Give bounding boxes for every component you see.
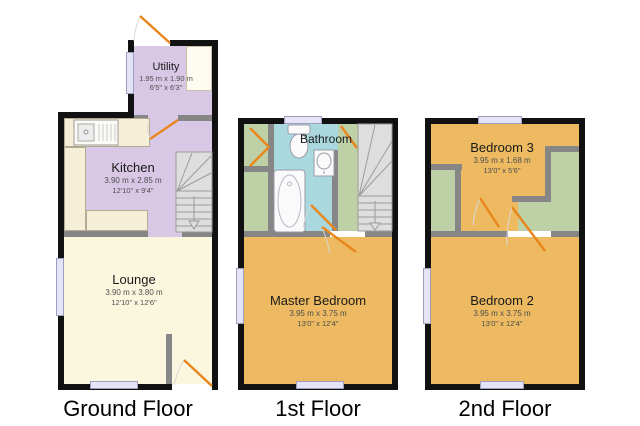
interior-wall — [512, 196, 551, 202]
stairwell — [518, 202, 551, 231]
interior-wall — [268, 124, 274, 231]
cupboard — [431, 170, 455, 231]
second-floor-caption: 2nd Floor — [425, 396, 585, 422]
door-jamb — [166, 334, 172, 384]
window — [478, 116, 522, 124]
wall — [392, 118, 398, 390]
wall — [425, 118, 431, 390]
window — [296, 381, 344, 389]
staircase-icon — [358, 124, 392, 231]
wall — [212, 40, 218, 390]
stairwell — [551, 152, 579, 231]
utility-worktop — [186, 46, 212, 91]
interior-wall — [244, 231, 330, 237]
wall — [238, 118, 244, 390]
lounge-room — [64, 237, 212, 384]
interior-wall — [365, 231, 392, 237]
interior-wall — [178, 115, 212, 121]
window — [56, 258, 64, 316]
floorplan-canvas: Utility 1.95 m x 1.90 m 6'5" x 6'3" Kitc… — [0, 0, 640, 426]
interior-wall — [551, 231, 579, 237]
ground-floor-caption: Ground Floor — [48, 396, 208, 422]
window — [90, 381, 138, 389]
window — [284, 116, 322, 124]
cupboard — [244, 124, 268, 166]
window — [423, 268, 431, 324]
kitchen-counter — [64, 118, 150, 147]
master-bedroom — [244, 237, 392, 384]
cupboard — [244, 172, 268, 231]
window — [480, 381, 524, 389]
kitchen-counter — [64, 147, 86, 231]
window — [126, 52, 134, 94]
bedroom-2 — [431, 237, 579, 384]
interior-wall — [455, 164, 461, 231]
window — [236, 268, 244, 324]
interior-wall — [545, 146, 551, 202]
kitchen-counter — [86, 210, 148, 231]
interior-wall — [64, 231, 148, 237]
interior-wall — [182, 231, 212, 237]
wall — [579, 118, 585, 390]
interior-wall — [431, 231, 508, 237]
first-floor-caption: 1st Floor — [238, 396, 398, 422]
landing — [338, 124, 358, 231]
interior-wall — [332, 150, 338, 231]
